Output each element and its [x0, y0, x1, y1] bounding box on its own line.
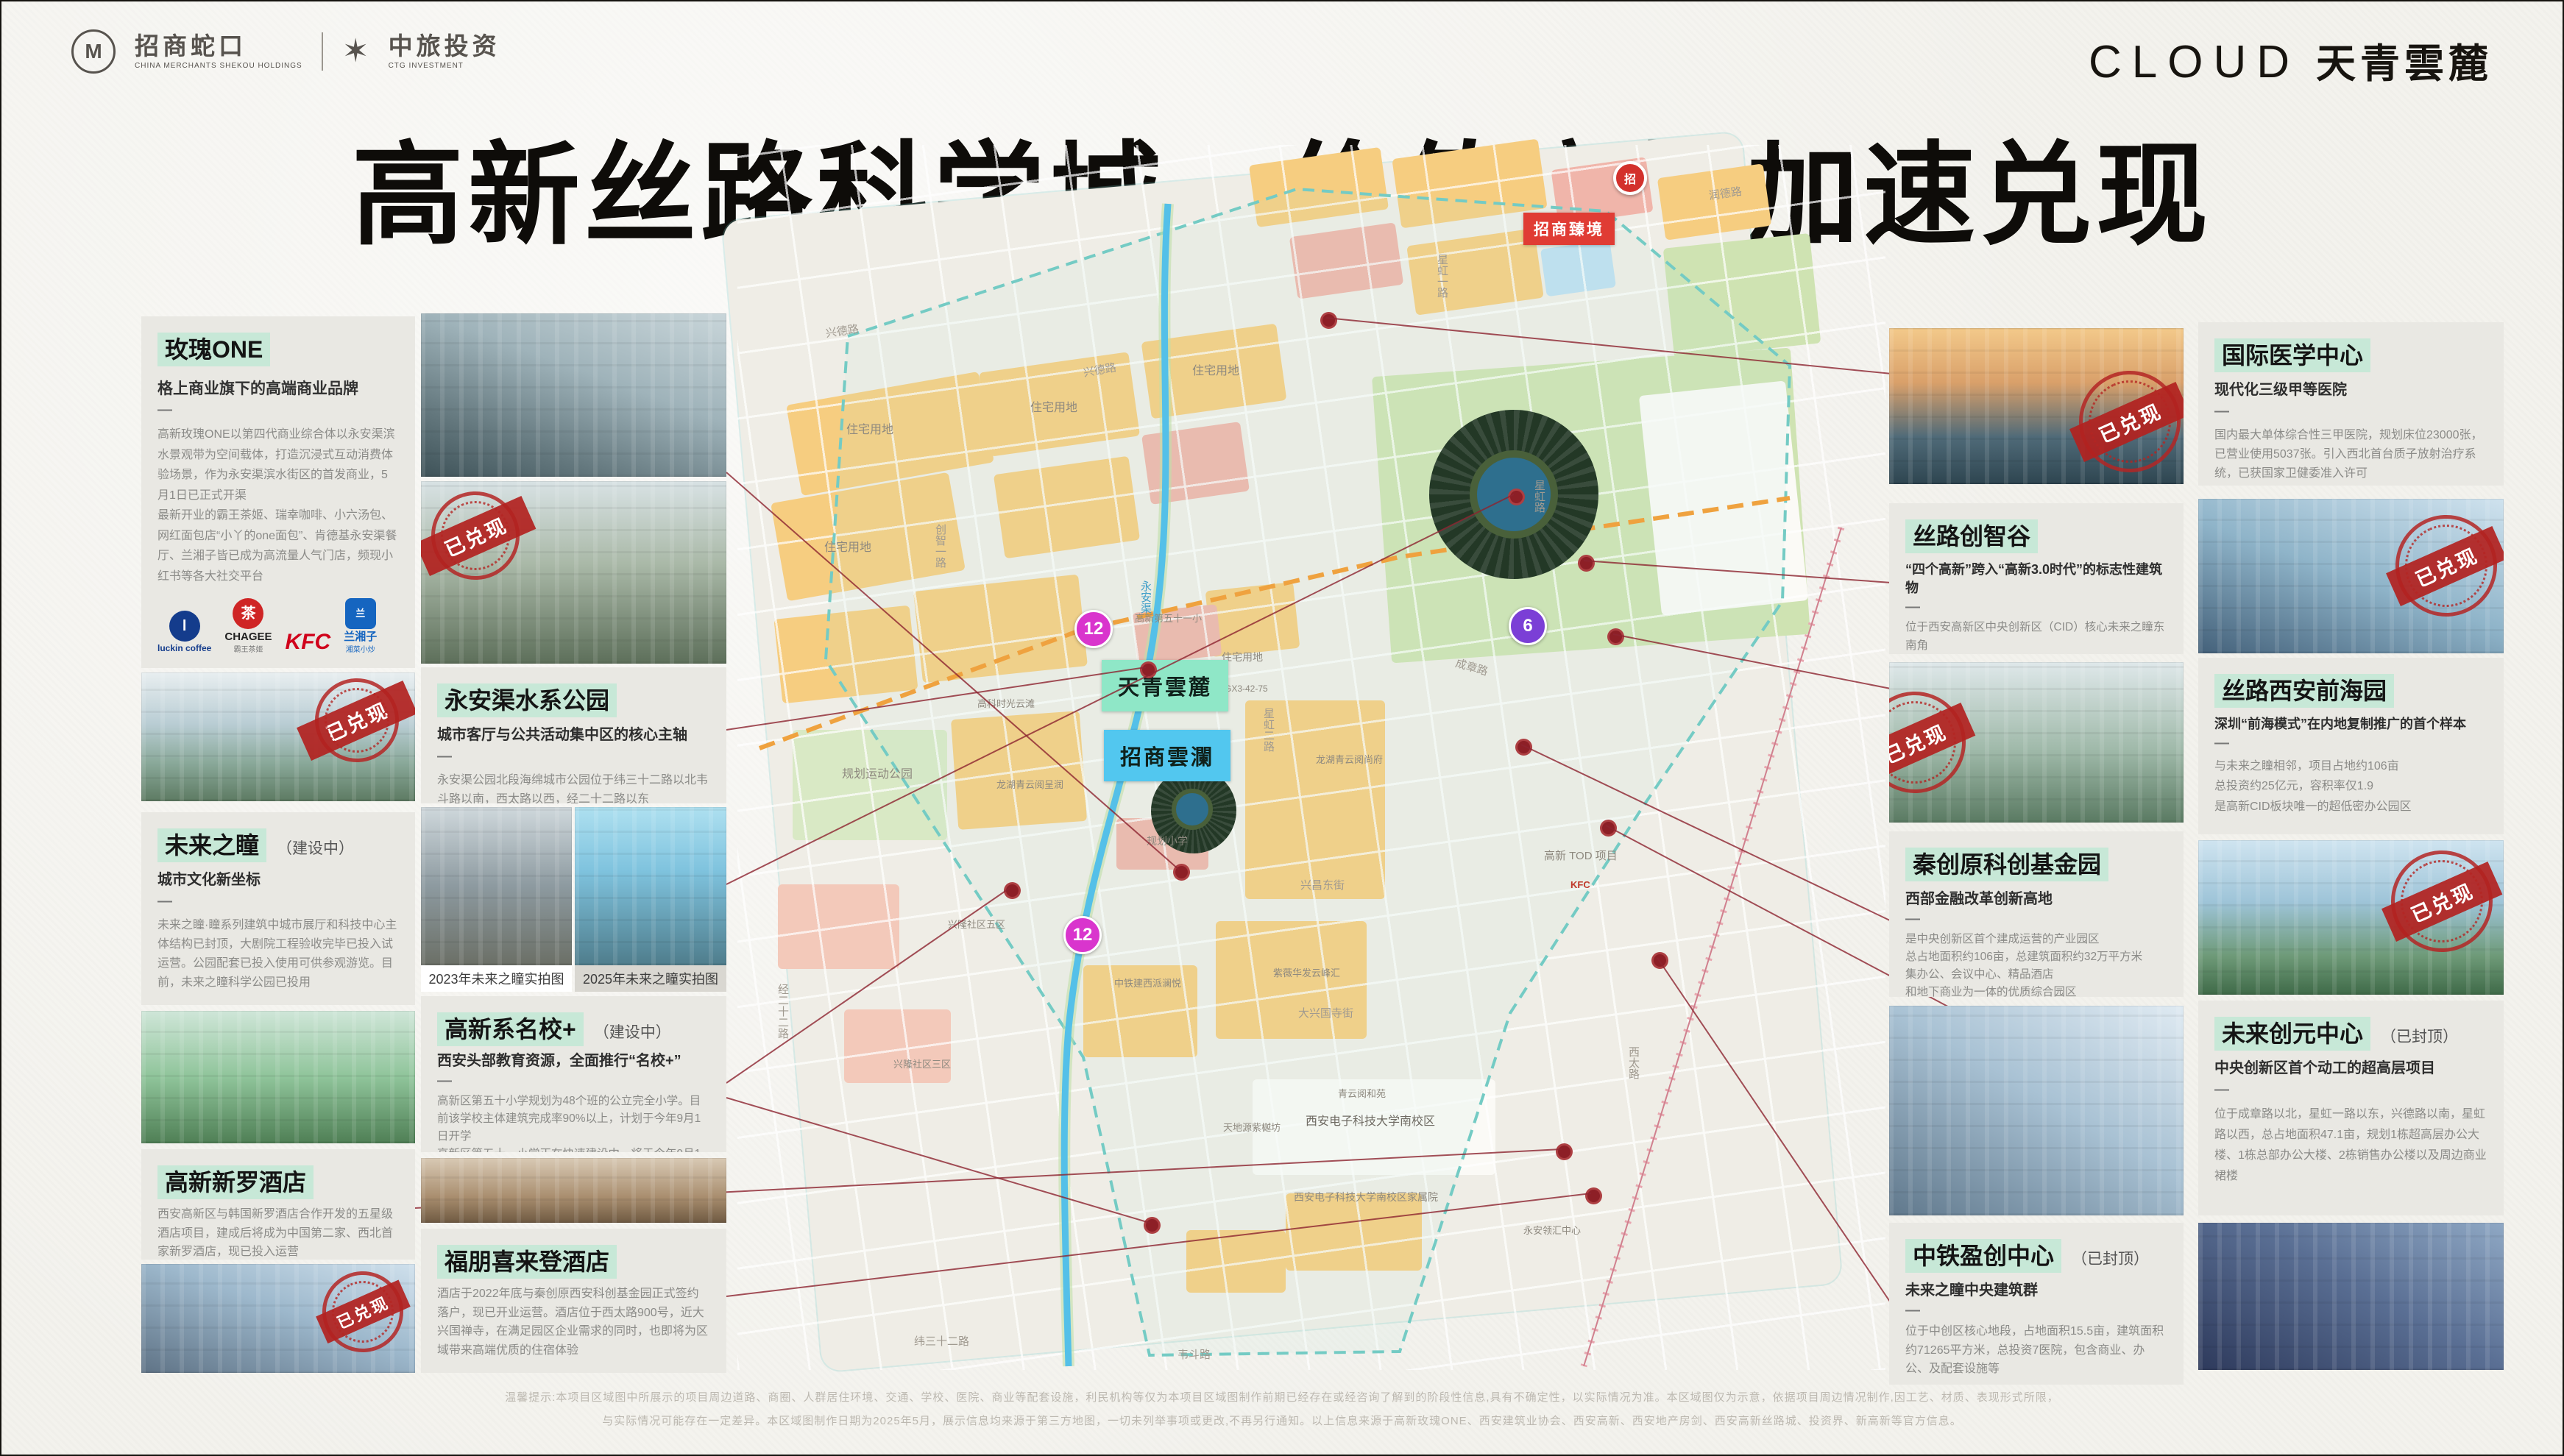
- brand-logo-row: lluckin coffee 茶CHAGEE霸王茶姬 KFC 兰兰湘子湘菜小炒 …: [157, 598, 399, 668]
- project-location-dot: [1515, 739, 1532, 756]
- card-body: 位于成章路以北，星虹一路以东，兴德路以南，星虹路以西，总占地面积47.1亩，规划…: [2214, 1104, 2487, 1187]
- map-zone: [793, 730, 947, 840]
- card-body: 酒店于2022年底与秦创原西安科创基金园正式签约落户，现已开业运营。酒店位于西太…: [437, 1285, 710, 1360]
- place-label: GX3-42-75: [1225, 683, 1268, 694]
- card-body: 与未来之瞳相邻，项目占地约106亩 总投资约25亿元，容积率仅1.9 是高新CI…: [2214, 756, 2487, 817]
- card-qianhai-park: 丝路西安前海园 深圳“前海模式”在内地复制推广的首个样本 — 与未来之瞳相邻，项…: [2198, 658, 2504, 834]
- road-label: 星虹二路: [1261, 708, 1275, 752]
- place-label: 规划运动公园: [842, 767, 913, 781]
- card-title: 丝路西安前海园: [2214, 674, 2394, 708]
- card-body: 是中央创新区首个建成运营的产业园区 总占地面积约106亩，总建筑面积约32万平方…: [1905, 931, 2167, 997]
- card-intl-medical-center: 国际医学中心 现代化三级甲等医院 — 国内最大单体综合性三甲医院，规划床位230…: [2198, 322, 2504, 486]
- lanxiangzi-icon: 兰: [345, 598, 376, 629]
- card-title: 中铁盈创中心: [1905, 1239, 2061, 1273]
- card-future-eye: 未来之瞳 （建设中） 城市文化新坐标 — 未来之瞳·瞳系列建筑中城市展厅和科技中…: [141, 812, 415, 1005]
- map-zone: [1216, 921, 1367, 1039]
- card-body: 位于中创区核心地段，占地面积15.5亩，建筑面积约71265平方米，总投资7医院…: [1905, 1322, 2167, 1379]
- cmsk-logo-zh: 招商蛇口: [135, 33, 302, 60]
- smart-valley-photo: 已兑现: [2198, 499, 2504, 653]
- divider: —: [2214, 1082, 2487, 1098]
- card-title: 未来之瞳: [157, 828, 266, 862]
- card-body: 高新区第五十小学规划为48个班的公立完全小学。目前该学校主体建筑完成率90%以上…: [437, 1093, 710, 1152]
- brand-luckin: lluckin coffee: [157, 611, 211, 653]
- place-label: 高新第五十一小: [1135, 613, 1202, 625]
- place-label: 兴隆社区三区: [893, 1059, 951, 1070]
- place-label: 青云阅和苑: [1338, 1088, 1386, 1100]
- disclaimer-line-1: 温馨提示:本项目区域图中所展示的项目周边道路、商圈、人群居住环境、交通、学校、医…: [1, 1389, 2563, 1404]
- card-qinchuangyuan-fund-park: 秦创原科创基金园 西部金融改革创新高地 — 是中央创新区首个建成运营的产业园区 …: [1889, 831, 2184, 997]
- card-status: （建设中）: [594, 1020, 671, 1043]
- divider: —: [157, 893, 399, 910]
- place-label: 西安电子科技大学南校区: [1306, 1115, 1435, 1129]
- yongan-canal-park-photo: 已兑现: [141, 672, 415, 801]
- map-zone: [1186, 1230, 1286, 1293]
- place-label: 龙湖青云阅尚府: [1316, 754, 1383, 766]
- card-shilla-hotel: 高新新罗酒店 西安高新区与韩国新罗酒店合作开发的五星级酒店项目，建成后将成为中国…: [141, 1149, 415, 1260]
- card-title: 玫瑰ONE: [157, 333, 270, 366]
- place-label: 西安电子科技大学南校区家属院: [1294, 1191, 1438, 1204]
- chagee-icon: 茶: [233, 598, 263, 629]
- school-photo: [141, 1011, 415, 1143]
- cmsk-logo-icon: M: [71, 29, 116, 74]
- place-label: 住宅用地: [1192, 364, 1239, 378]
- place-label: 住宅用地: [846, 423, 893, 437]
- card-title: 国际医学中心: [2214, 338, 2370, 372]
- card-title: 福朋喜来登酒店: [437, 1245, 617, 1279]
- rose-one-photo-2: 已兑现: [421, 481, 726, 664]
- project-location-dot: [1556, 1143, 1573, 1160]
- card-body: 未来之瞳·瞳系列建筑中城市展厅和科技中心主体结构已封顶，大剧院工程验收完毕已投入…: [157, 916, 399, 992]
- card-subtitle: 西部金融改革创新高地: [1905, 889, 2167, 909]
- cmsk-logo-en: CHINA MERCHANTS SHEKOU HOLDINGS: [135, 62, 302, 70]
- brand-lanxiangzi: 兰兰湘子湘菜小炒: [344, 598, 377, 654]
- sheraton-photo: [421, 1158, 726, 1223]
- divider: —: [1905, 911, 2167, 928]
- chuangyuan-center-photo: [1889, 1006, 2184, 1215]
- brand-one: oneEnjoy yourself in One Space.: [230, 667, 325, 668]
- project-tag-red[interactable]: 招商臻境: [1523, 213, 1615, 245]
- map-zone: [844, 1009, 951, 1083]
- card-subtitle: 中央创新区首个动工的超高层项目: [2214, 1058, 2487, 1079]
- place-label: 高新 TOD 项目: [1544, 850, 1618, 863]
- card-title: 高新系名校+: [437, 1012, 584, 1046]
- card-yongan-canal-park: 永安渠水系公园 城市客厅与公共活动集中区的核心主轴 — 永安渠公园北段海绵城市公…: [421, 667, 726, 803]
- project-location-dot: [1144, 1217, 1161, 1234]
- road-label: 大兴国寺街: [1298, 1007, 1353, 1020]
- card-rose-one: 玫瑰ONE 格上商业旗下的高端商业品牌 — 高新玫瑰ONE以第四代商业综合体以永…: [141, 316, 415, 668]
- card-status: （建设中）: [277, 837, 354, 859]
- project-location-dot: [1508, 489, 1525, 505]
- place-label: KFC: [1570, 879, 1590, 891]
- district-map[interactable]: 兴德路兴德路润德路创智一路星虹一路星虹二路星虹路成章路兴昌东街大兴国寺街西太路纬…: [737, 145, 1885, 1370]
- card-famous-schools: 高新系名校+ （建设中） 西安头部教育资源，全面推行“名校+” — 高新区第五十…: [421, 996, 726, 1152]
- card-future-chuangyuan-center: 未来创元中心 （已封顶） 中央创新区首个动工的超高层项目 — 位于成章路以北，星…: [2198, 1001, 2504, 1215]
- card-subtitle: “四个高新”跨入“高新3.0时代”的标志性建筑物: [1905, 561, 2167, 597]
- road-label: 韦斗路: [1177, 1349, 1211, 1362]
- project-location-dot: [1320, 312, 1337, 329]
- card-title: 未来创元中心: [2214, 1017, 2370, 1051]
- place-label: 住宅用地: [1030, 401, 1077, 415]
- card-body: 永安渠公园北段海绵城市公园位于纬三十二路以北韦斗路以南，西太路以西，经二十二路以…: [437, 771, 710, 803]
- metro-line-12-marker[interactable]: 12: [1074, 610, 1113, 648]
- logo-divider: [322, 32, 323, 71]
- photo-caption-2023: 2023年未来之瞳实拍图: [421, 965, 572, 992]
- road-label: 兴昌东街: [1300, 879, 1345, 892]
- project-location-dot: [1600, 820, 1617, 837]
- project-tag-blue[interactable]: 招商雲瀾: [1104, 730, 1230, 781]
- map-zone: [1663, 233, 1821, 358]
- brand-kfc: KFC: [286, 630, 331, 654]
- metro-line-12-marker[interactable]: 12: [1063, 916, 1102, 954]
- map-zone: [1639, 380, 1808, 615]
- card-body: 位于西安高新区中央创新区（CID）核心未来之瞳东南角 占地约64.5亩，总建面约…: [1905, 619, 2167, 654]
- qianhai-park-photo: 已兑现: [1889, 662, 2184, 823]
- metro-line-6-marker[interactable]: 6: [1509, 607, 1547, 645]
- card-body: 国内最大单体综合性三甲医院，规划床位23000张，已营业使用5037张。引入西北…: [2214, 426, 2487, 483]
- place-label: 规划小学: [1147, 835, 1188, 848]
- card-title: 永安渠水系公园: [437, 683, 617, 717]
- divider: —: [1905, 1302, 2167, 1319]
- project-location-dot: [1173, 864, 1190, 881]
- road-label: 创智一路: [933, 524, 946, 568]
- project-location-dot: [1651, 952, 1668, 969]
- card-subtitle: 现代化三级甲等医院: [2214, 380, 2487, 400]
- divider: —: [2214, 403, 2487, 420]
- map-zone: [913, 575, 1088, 683]
- disclaimer-line-2: 与实际情况可能存在一定差异。本区域图制作日期为2025年5月，展示信息均来源于第…: [1, 1413, 2563, 1428]
- card-crcc-yingchuang-center: 中铁盈创中心 （已封顶） 未来之瞳中央建筑群 — 位于中创区核心地段，占地面积1…: [1889, 1223, 2184, 1385]
- project-location-dot: [1140, 661, 1157, 678]
- card-subtitle: 城市文化新坐标: [157, 870, 399, 890]
- header-logos: M 招商蛇口 CHINA MERCHANTS SHEKOU HOLDINGS ✶…: [71, 29, 500, 74]
- map-zone: [951, 711, 1087, 830]
- redeemed-stamp: 已兑现: [1889, 675, 1982, 809]
- luckin-deer-icon: l: [169, 611, 200, 642]
- place-label: 天地源紫樾坊: [1223, 1122, 1281, 1134]
- card-title: 秦创原科创基金园: [1905, 848, 2108, 881]
- poster-canvas: M 招商蛇口 CHINA MERCHANTS SHEKOU HOLDINGS ✶…: [0, 0, 2564, 1456]
- card-body: 高新玫瑰ONE以第四代商业综合体以永安渠滨水景观带为空间载体，打造沉浸式互动消费…: [157, 425, 399, 586]
- project-location-dot: [1004, 882, 1021, 899]
- road-label: 西太路: [1626, 1046, 1640, 1079]
- project-location-dot: [1607, 628, 1624, 645]
- divider: —: [1905, 599, 2167, 616]
- redeemed-stamp: 已兑现: [309, 1264, 415, 1366]
- card-body: 西安高新区与韩国新罗酒店合作开发的五星级酒店项目，建成后将成为中国第二家、西北首…: [157, 1205, 399, 1260]
- future-eye-photo-2023: [421, 807, 572, 965]
- map-zone: [773, 606, 918, 704]
- map-zone: [1286, 1193, 1422, 1271]
- ctg-logo-zh: 中旅投资: [389, 33, 500, 60]
- rose-one-photo-1: [421, 313, 726, 477]
- card-four-points-sheraton: 福朋喜来登酒店 酒店于2022年底与秦创原西安科创基金园正式签约落户，现已开业运…: [421, 1229, 726, 1373]
- redeemed-stamp: 已兑现: [2375, 840, 2504, 968]
- ctg-logo-en: CTG INVESTMENT: [389, 62, 500, 70]
- road-label: 永安渠: [1138, 580, 1152, 614]
- fund-park-photo: 已兑现: [2198, 840, 2504, 995]
- place-label: 住宅用地: [824, 541, 871, 555]
- road-label: 星虹一路: [1435, 254, 1448, 298]
- ctg-logo-icon: ✶: [342, 35, 369, 68]
- redeemed-stamp: 已兑现: [302, 672, 413, 775]
- place-label: 龙湖青云阅呈润: [996, 779, 1063, 791]
- divider: —: [437, 748, 710, 765]
- map-pin[interactable]: 招: [1613, 161, 1647, 195]
- place-label: 兴隆社区五区: [948, 919, 1005, 931]
- yingchuang-center-photo: [2198, 1223, 2504, 1370]
- card-silkroad-smart-valley: 丝路创智谷 “四个高新”跨入“高新3.0时代”的标志性建筑物 — 位于西安高新区…: [1889, 503, 2184, 654]
- divider: —: [2214, 735, 2487, 752]
- map-zone: [1540, 240, 1616, 297]
- redeemed-stamp: 已兑现: [2063, 355, 2184, 484]
- place-label: 中铁建西派澜悦: [1114, 978, 1181, 990]
- place-label: 高科时光云滩: [977, 698, 1035, 710]
- road-label: 纬三十二路: [914, 1335, 969, 1349]
- brand-zh: 天青雲麓: [2316, 31, 2493, 89]
- road-label: 经二十二路: [776, 984, 789, 1039]
- card-subtitle: 未来之瞳中央建筑群: [1905, 1280, 2167, 1301]
- project-location-dot: [1585, 1187, 1602, 1204]
- shilla-hotel-photo: 已兑现: [141, 1264, 415, 1373]
- card-status: （已封顶）: [2381, 1025, 2458, 1047]
- place-label: 永安领汇中心: [1523, 1225, 1581, 1237]
- card-title: 高新新罗酒店: [157, 1165, 314, 1199]
- road-label: 星虹路: [1532, 480, 1545, 513]
- future-eye-photo-2025: [575, 807, 726, 965]
- card-status: （已封顶）: [2072, 1247, 2149, 1269]
- project-location-dot: [1578, 555, 1595, 572]
- card-tagline: 格上商业旗下的高端商业品牌: [157, 377, 358, 399]
- card-subtitle: 西安头部教育资源，全面推行“名校+”: [437, 1051, 710, 1071]
- card-title: 丝路创智谷: [1905, 519, 2038, 553]
- project-tag-teal[interactable]: 天青雲麓: [1102, 660, 1228, 711]
- card-subtitle: 城市客厅与公共活动集中区的核心主轴: [437, 725, 710, 745]
- redeemed-stamp: 已兑现: [2379, 499, 2504, 633]
- map-zone: [778, 884, 899, 969]
- brand-en: CLOUD: [2089, 36, 2300, 88]
- brand-chagee: 茶CHAGEE霸王茶姬: [224, 598, 272, 654]
- map-zone: [1141, 422, 1250, 505]
- intl-medical-center-photo: 已兑现: [1889, 328, 2184, 484]
- project-brand-logo: CLOUD 天青雲麓: [2089, 31, 2493, 89]
- card-subtitle: 深圳“前海模式”在内地复制推广的首个样本: [2214, 715, 2487, 734]
- photo-caption-2025: 2025年未来之瞳实拍图: [575, 965, 726, 992]
- redeemed-stamp: 已兑现: [421, 481, 534, 594]
- divider: —: [437, 1073, 710, 1090]
- divider: —: [157, 402, 399, 419]
- place-label: 紫薇华发云峰汇: [1273, 967, 1340, 979]
